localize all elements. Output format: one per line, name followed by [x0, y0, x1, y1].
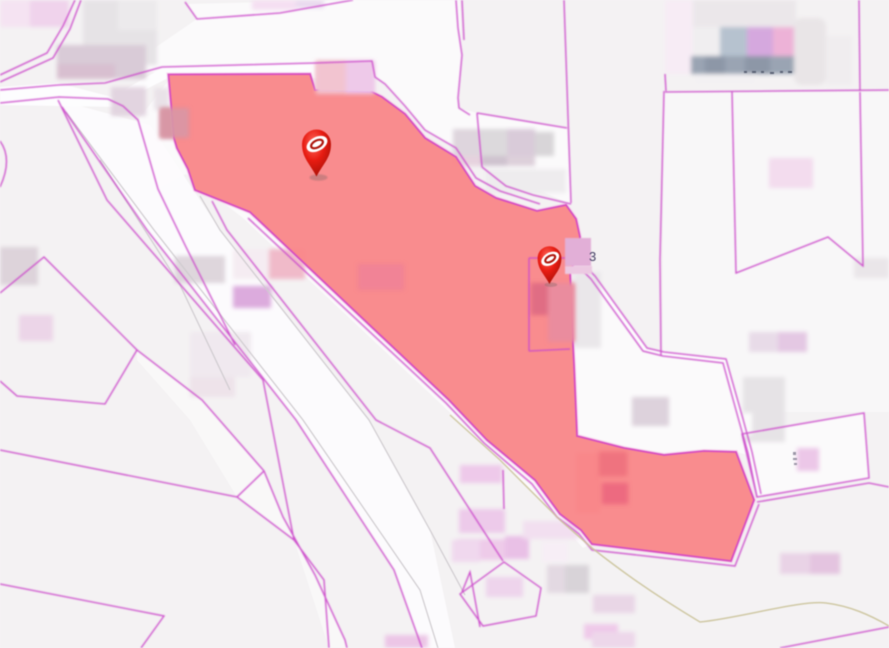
svg-text:3: 3 [589, 249, 596, 264]
